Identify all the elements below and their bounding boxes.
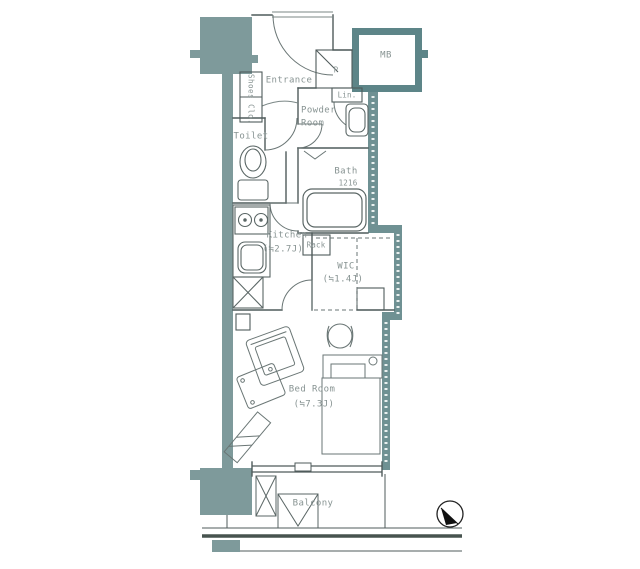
bath-size-label: 1216 [339,178,358,189]
bedroom-wall-cabinet [236,314,250,330]
kitchen-counter [233,205,270,277]
entrance-door-arc [273,15,333,75]
column-top-left [200,17,252,74]
powder-room-label: Powder Room [301,105,336,130]
bedroom-door-arc [282,280,312,310]
desk-furniture [323,355,382,378]
stove-burners-icon [235,207,268,234]
lower-column-block [212,540,240,552]
bedroom-label: Bed Room [289,385,336,396]
column-stub [190,470,200,480]
wic-label: WIC [337,262,354,273]
pipe-space-label: P [334,65,339,76]
desk-chair-icon [327,324,353,348]
bath-label: Bath [334,167,357,178]
ac-unit-icon [256,476,276,516]
armchair-furniture [245,326,305,387]
column-bottom-left [200,468,252,515]
floor-plan: MB P Lin. Entrance Shoes Clo. Powder Roo… [0,0,640,569]
balcony-label: Balcony [293,499,334,510]
bath-folding-door [304,151,326,159]
rack-label: Rack [307,240,326,251]
meter-box-label: MB [380,51,392,62]
table-furniture [236,363,286,410]
kitchen-size-label: (≒2.7J) [263,245,304,256]
column-stub [190,50,200,58]
toilet-label: Toilet [234,132,269,143]
compass-north-icon [437,501,463,527]
washbasin-icon [346,104,368,136]
sliding-window [252,463,382,472]
wic-size-label: (≒1.4J) [323,275,364,286]
column-stub [252,55,258,63]
bathtub-icon [303,189,366,231]
kitchen-label: Kitchen [267,231,308,242]
refrigerator-space-icon [233,277,263,308]
shoes-closet-label: Shoes Clo. [246,74,257,124]
floor-plan-drawing [0,0,640,569]
bedroom-size-label: (≒7.3J) [294,400,335,411]
entrance-label: Entrance [266,76,313,87]
kitchen-door-arc [270,203,298,231]
linen-label: Lin. [338,90,357,101]
toilet-door-arc [265,118,297,150]
toilet-icon [238,146,268,200]
left-exterior-wall [222,74,233,470]
entrance-step-line [262,101,298,106]
wic-storage-box [357,288,384,310]
